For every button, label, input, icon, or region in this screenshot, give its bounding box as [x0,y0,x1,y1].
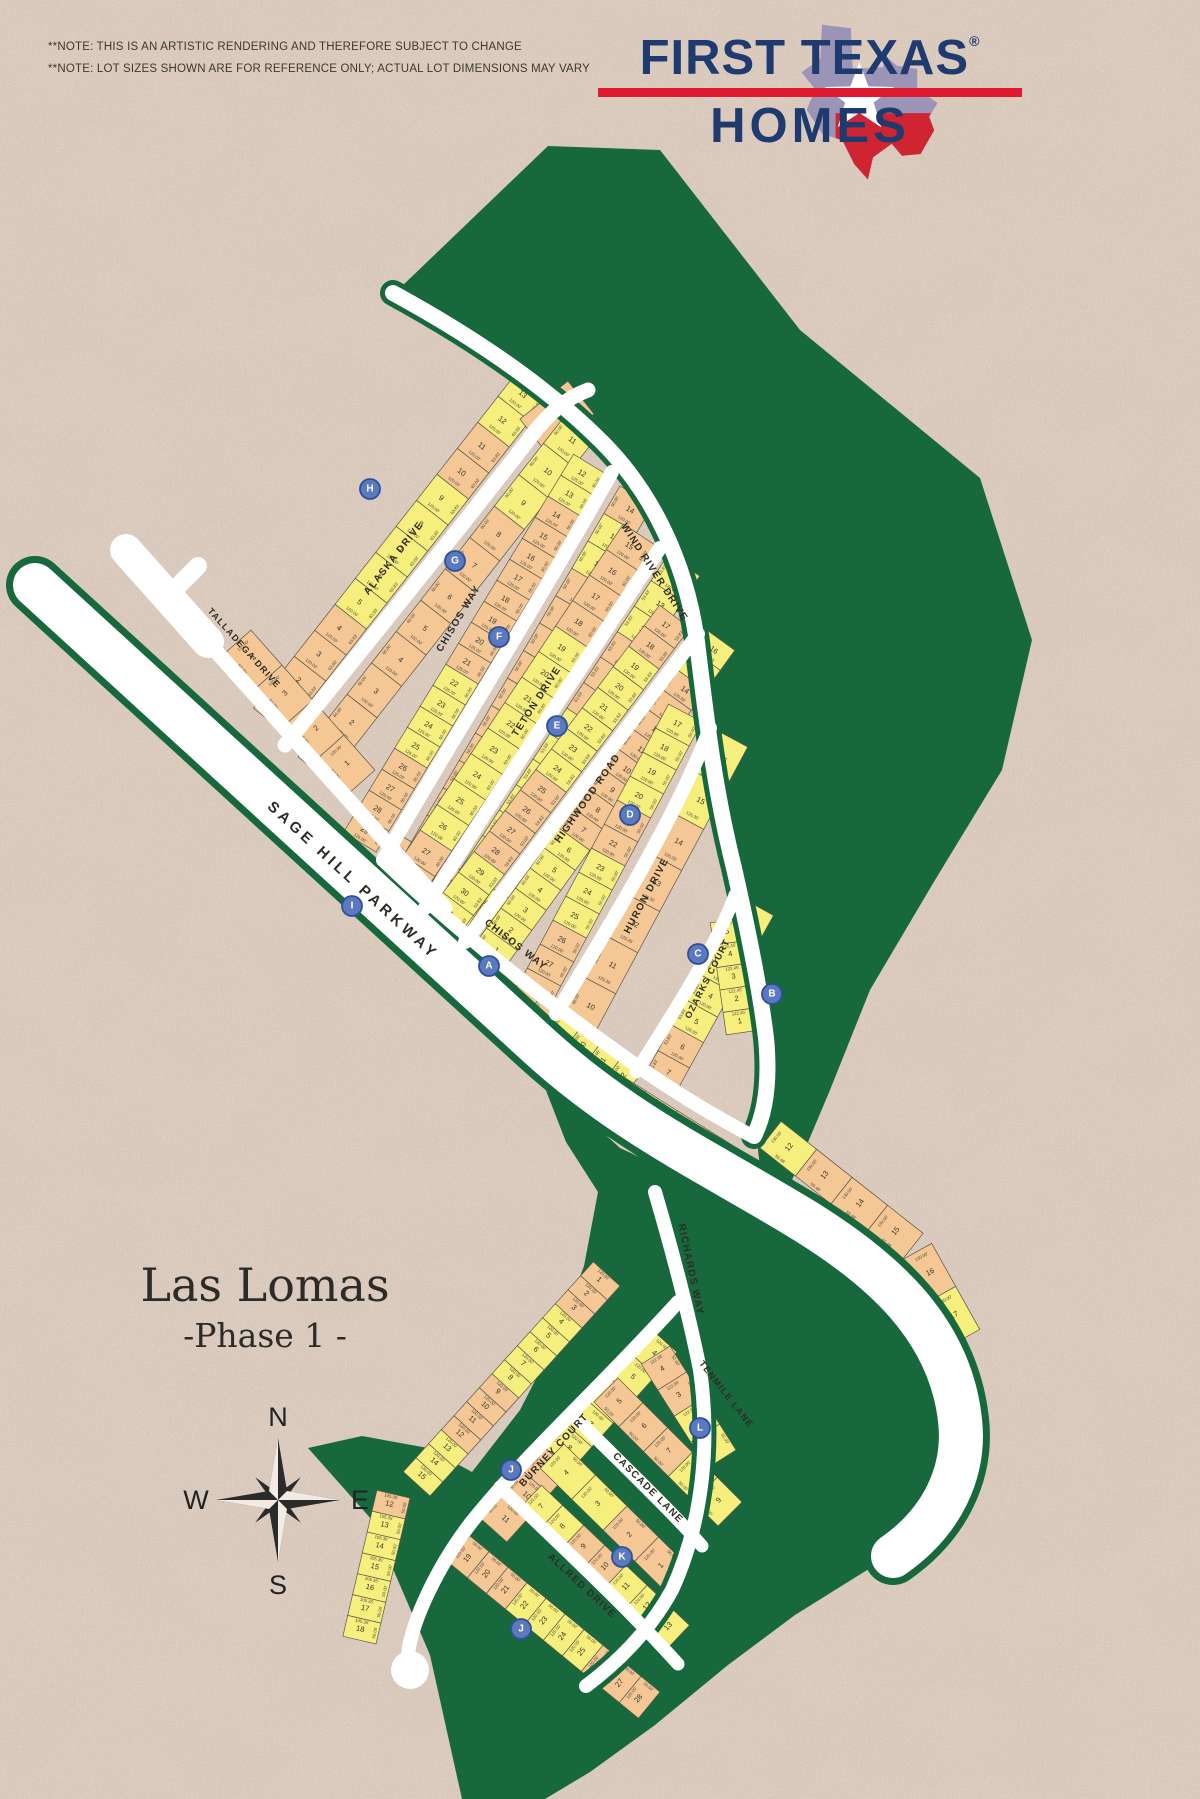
map-marker-K: K [612,1547,632,1567]
logo-line-1: FIRST TEXAS® [592,30,1028,86]
phase-label: -Phase 1 - [100,1316,430,1355]
logo-line-2: HOMES [592,98,1028,154]
map-marker-J: J [501,1460,521,1480]
logo-red-bar [598,88,1022,97]
marker-letter: A [485,961,492,972]
compass-s: S [269,1570,287,1600]
community-title: Las Lomas -Phase 1 - [100,1258,430,1355]
marker-letter: L [697,1423,703,1434]
map-marker-H: H [360,479,380,499]
marker-letter: K [618,1552,626,1563]
community-name: Las Lomas [100,1258,430,1312]
map-marker-A: A [479,956,499,976]
map-marker-D: D [620,805,640,825]
note-line-1: **NOTE: THIS IS AN ARTISTIC RENDERING AN… [48,36,590,58]
map-marker-J: J [511,1619,531,1639]
disclaimer-notes: **NOTE: THIS IS AN ARTISTIC RENDERING AN… [48,36,590,81]
marker-letter: B [768,989,775,1000]
compass-rose: N E S W [178,1400,378,1605]
map-marker-I: I [342,896,362,916]
compass-n: N [268,1402,288,1432]
registered-mark: ® [969,33,980,49]
marker-letter: J [508,1465,514,1476]
note-line-2: **NOTE: LOT SIZES SHOWN ARE FOR REFERENC… [48,58,590,80]
cul-de-sac [391,1651,429,1689]
marker-letter: E [554,721,561,732]
map-marker-E: E [547,716,567,736]
map-marker-C: C [688,944,708,964]
map-marker-F: F [489,627,509,647]
marker-letter: C [694,949,701,960]
marker-letter: I [351,901,354,912]
marker-letter: F [496,632,502,643]
marker-letter: J [518,1624,524,1635]
compass-star-icon [216,1438,340,1562]
site-plan-poster: 1120.00'63.83'2120.00'63.83'3120.00'63.8… [0,0,1200,1799]
map-marker-L: L [690,1418,710,1438]
map-marker-G: G [445,551,465,571]
compass-e: E [351,1485,369,1515]
marker-letter: H [366,484,373,495]
first-texas-homes-logo: FIRST TEXAS® HOMES [592,30,1028,190]
marker-letter: G [451,556,459,567]
marker-letter: D [626,810,633,821]
map-marker-B: B [762,984,782,1004]
compass-w: W [183,1485,209,1515]
